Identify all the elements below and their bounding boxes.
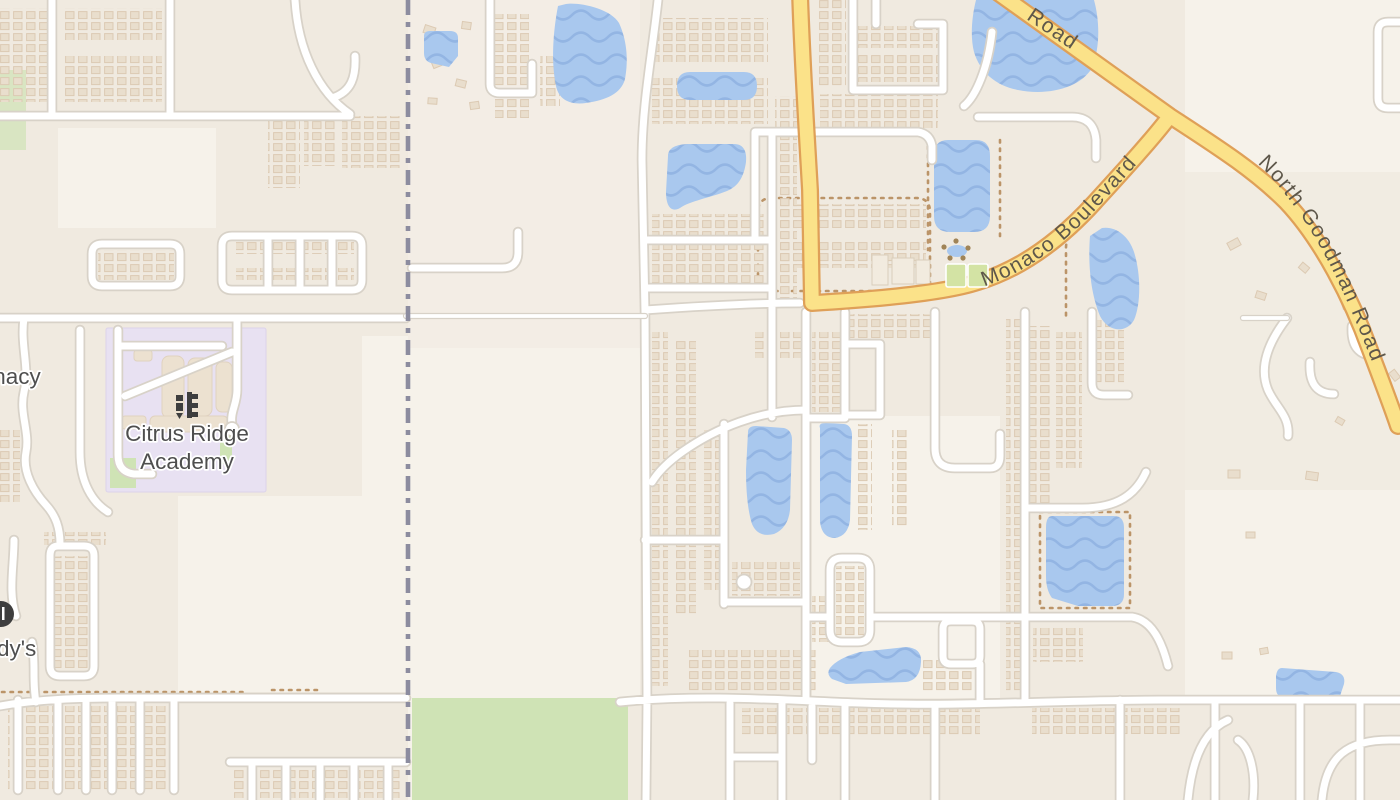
school-label-line1: Citrus Ridge [125,421,249,446]
restaurant-label: dy's [0,636,36,661]
pond [746,426,792,535]
tree-icon [947,255,952,260]
pond [424,31,458,67]
park-area [412,698,628,800]
map-canvas[interactable]: Citrus Ridge Academy macy dy's Monaco Bo… [0,0,1400,800]
pond [677,72,757,100]
tree-icon [965,245,970,250]
tree-icon [960,255,965,260]
school-icon [176,392,198,419]
pharmacy-label: macy [0,364,42,389]
pond [820,423,852,538]
school-label-line2: Academy [140,449,235,474]
cul-de-sac [737,575,752,590]
pond [934,140,990,232]
pond [1046,516,1124,606]
tree-icon [941,244,946,249]
map-svg: Citrus Ridge Academy macy dy's Monaco Bo… [0,0,1400,800]
tree-icon [953,238,958,243]
fountain-pond [947,245,967,257]
clubhouse-buildings [872,255,930,285]
sport-court [946,264,966,287]
